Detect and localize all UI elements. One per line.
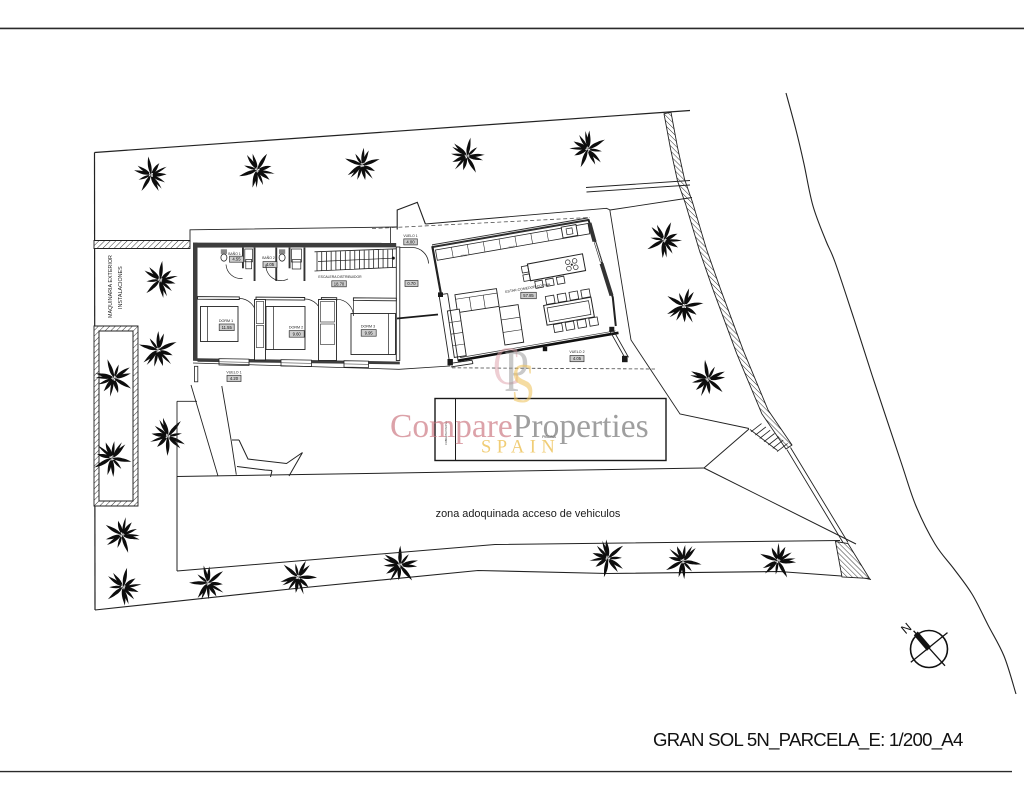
svg-text:S: S	[511, 353, 535, 415]
svg-text:57.85: 57.85	[523, 293, 534, 298]
svg-text:4.05: 4.05	[573, 356, 582, 361]
svg-text:9.95: 9.95	[365, 330, 374, 335]
svg-text:DORM 1: DORM 1	[219, 319, 233, 323]
svg-text:MAQUINARIA EXTERIOR: MAQUINARIA EXTERIOR	[108, 255, 114, 318]
svg-text:INSTALACIONES: INSTALACIONES	[118, 266, 124, 309]
svg-text:11.55: 11.55	[222, 325, 233, 330]
svg-text:ESCALERA DISTRIBUIDOR: ESCALERA DISTRIBUIDOR	[318, 275, 362, 279]
svg-text:GRAN SOL 5N_PARCELA_E: 1/200_A: GRAN SOL 5N_PARCELA_E: 1/200_A4	[653, 729, 963, 751]
svg-text:DORM 3: DORM 3	[361, 324, 375, 328]
svg-text:4.55: 4.55	[232, 257, 241, 262]
svg-text:SPAIN: SPAIN	[481, 438, 560, 458]
svg-text:4.20: 4.20	[230, 376, 239, 381]
svg-text:0.70: 0.70	[407, 281, 416, 286]
svg-text:DORM 2: DORM 2	[289, 325, 303, 329]
svg-text:VUELO 1: VUELO 1	[403, 234, 417, 238]
svg-text:18.70: 18.70	[334, 281, 345, 286]
svg-text:VUELO 2: VUELO 2	[569, 350, 584, 354]
svg-text:9.60: 9.60	[293, 331, 302, 336]
svg-text:zona adoquinada acceso de vehi: zona adoquinada acceso de vehiculos	[436, 508, 621, 520]
svg-text:4.05: 4.05	[266, 262, 275, 267]
svg-text:4.00: 4.00	[406, 239, 415, 244]
svg-text:VUELO 1: VUELO 1	[226, 371, 241, 375]
svg-text:BAÑO 2: BAÑO 2	[262, 255, 275, 260]
svg-text:BAÑO 1: BAÑO 1	[228, 251, 241, 256]
